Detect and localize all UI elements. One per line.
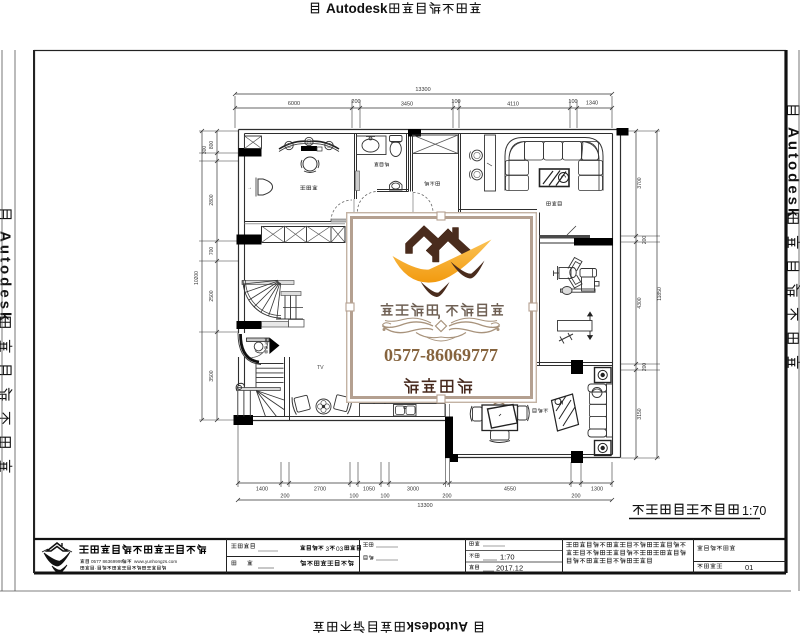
svg-text:200: 200	[642, 363, 648, 372]
svg-text:13300: 13300	[415, 87, 430, 93]
svg-text:800: 800	[209, 141, 215, 150]
svg-text:100: 100	[380, 494, 389, 500]
svg-text:100: 100	[451, 99, 460, 105]
svg-text:2017.12: 2017.12	[496, 564, 523, 573]
svg-text:2700: 2700	[314, 487, 326, 493]
svg-text:10200: 10200	[194, 271, 200, 285]
svg-text:3: 3	[326, 546, 330, 553]
svg-text:200: 200	[351, 99, 360, 105]
svg-text:200: 200	[571, 494, 580, 500]
svg-text:Autodesk: Autodesk	[406, 619, 468, 634]
svg-text:700: 700	[209, 247, 215, 256]
svg-text:3000: 3000	[407, 487, 419, 493]
svg-text:1:70: 1:70	[742, 504, 766, 518]
svg-text:TV: TV	[317, 365, 324, 371]
svg-text:0577 86369999: 0577 86369999	[91, 559, 123, 564]
svg-text:2500: 2500	[209, 290, 215, 301]
svg-text:4550: 4550	[504, 487, 516, 493]
svg-text:1300: 1300	[591, 487, 603, 493]
svg-text:www.yunhongzs.com: www.yunhongzs.com	[134, 559, 177, 564]
svg-text:100: 100	[568, 99, 577, 105]
svg-text:3450: 3450	[401, 102, 413, 108]
svg-text:4110: 4110	[507, 102, 519, 108]
svg-text:3500: 3500	[209, 370, 215, 381]
svg-text:200: 200	[442, 494, 451, 500]
svg-text:13300: 13300	[417, 503, 432, 509]
svg-text:3150: 3150	[637, 408, 643, 419]
svg-text:01: 01	[745, 563, 753, 572]
svg-text:3700: 3700	[637, 177, 643, 188]
svg-text:11850: 11850	[657, 287, 663, 301]
svg-text:100: 100	[349, 494, 358, 500]
svg-text:200: 200	[280, 494, 289, 500]
svg-text:300: 300	[202, 146, 208, 155]
svg-text:1400: 1400	[256, 487, 268, 493]
svg-text:03: 03	[336, 546, 344, 553]
svg-text:1050: 1050	[363, 487, 375, 493]
svg-text:2800: 2800	[209, 194, 215, 205]
svg-text:·: ·	[95, 566, 97, 571]
svg-text:→: →	[247, 185, 252, 191]
svg-text:0577-86069777: 0577-86069777	[384, 345, 498, 365]
svg-text:1340: 1340	[586, 101, 598, 107]
svg-text:4300: 4300	[637, 297, 643, 308]
svg-text:6000: 6000	[288, 101, 300, 107]
svg-text:1:70: 1:70	[500, 553, 515, 562]
svg-text:200: 200	[642, 236, 648, 245]
svg-text:Autodesk: Autodesk	[326, 1, 388, 16]
